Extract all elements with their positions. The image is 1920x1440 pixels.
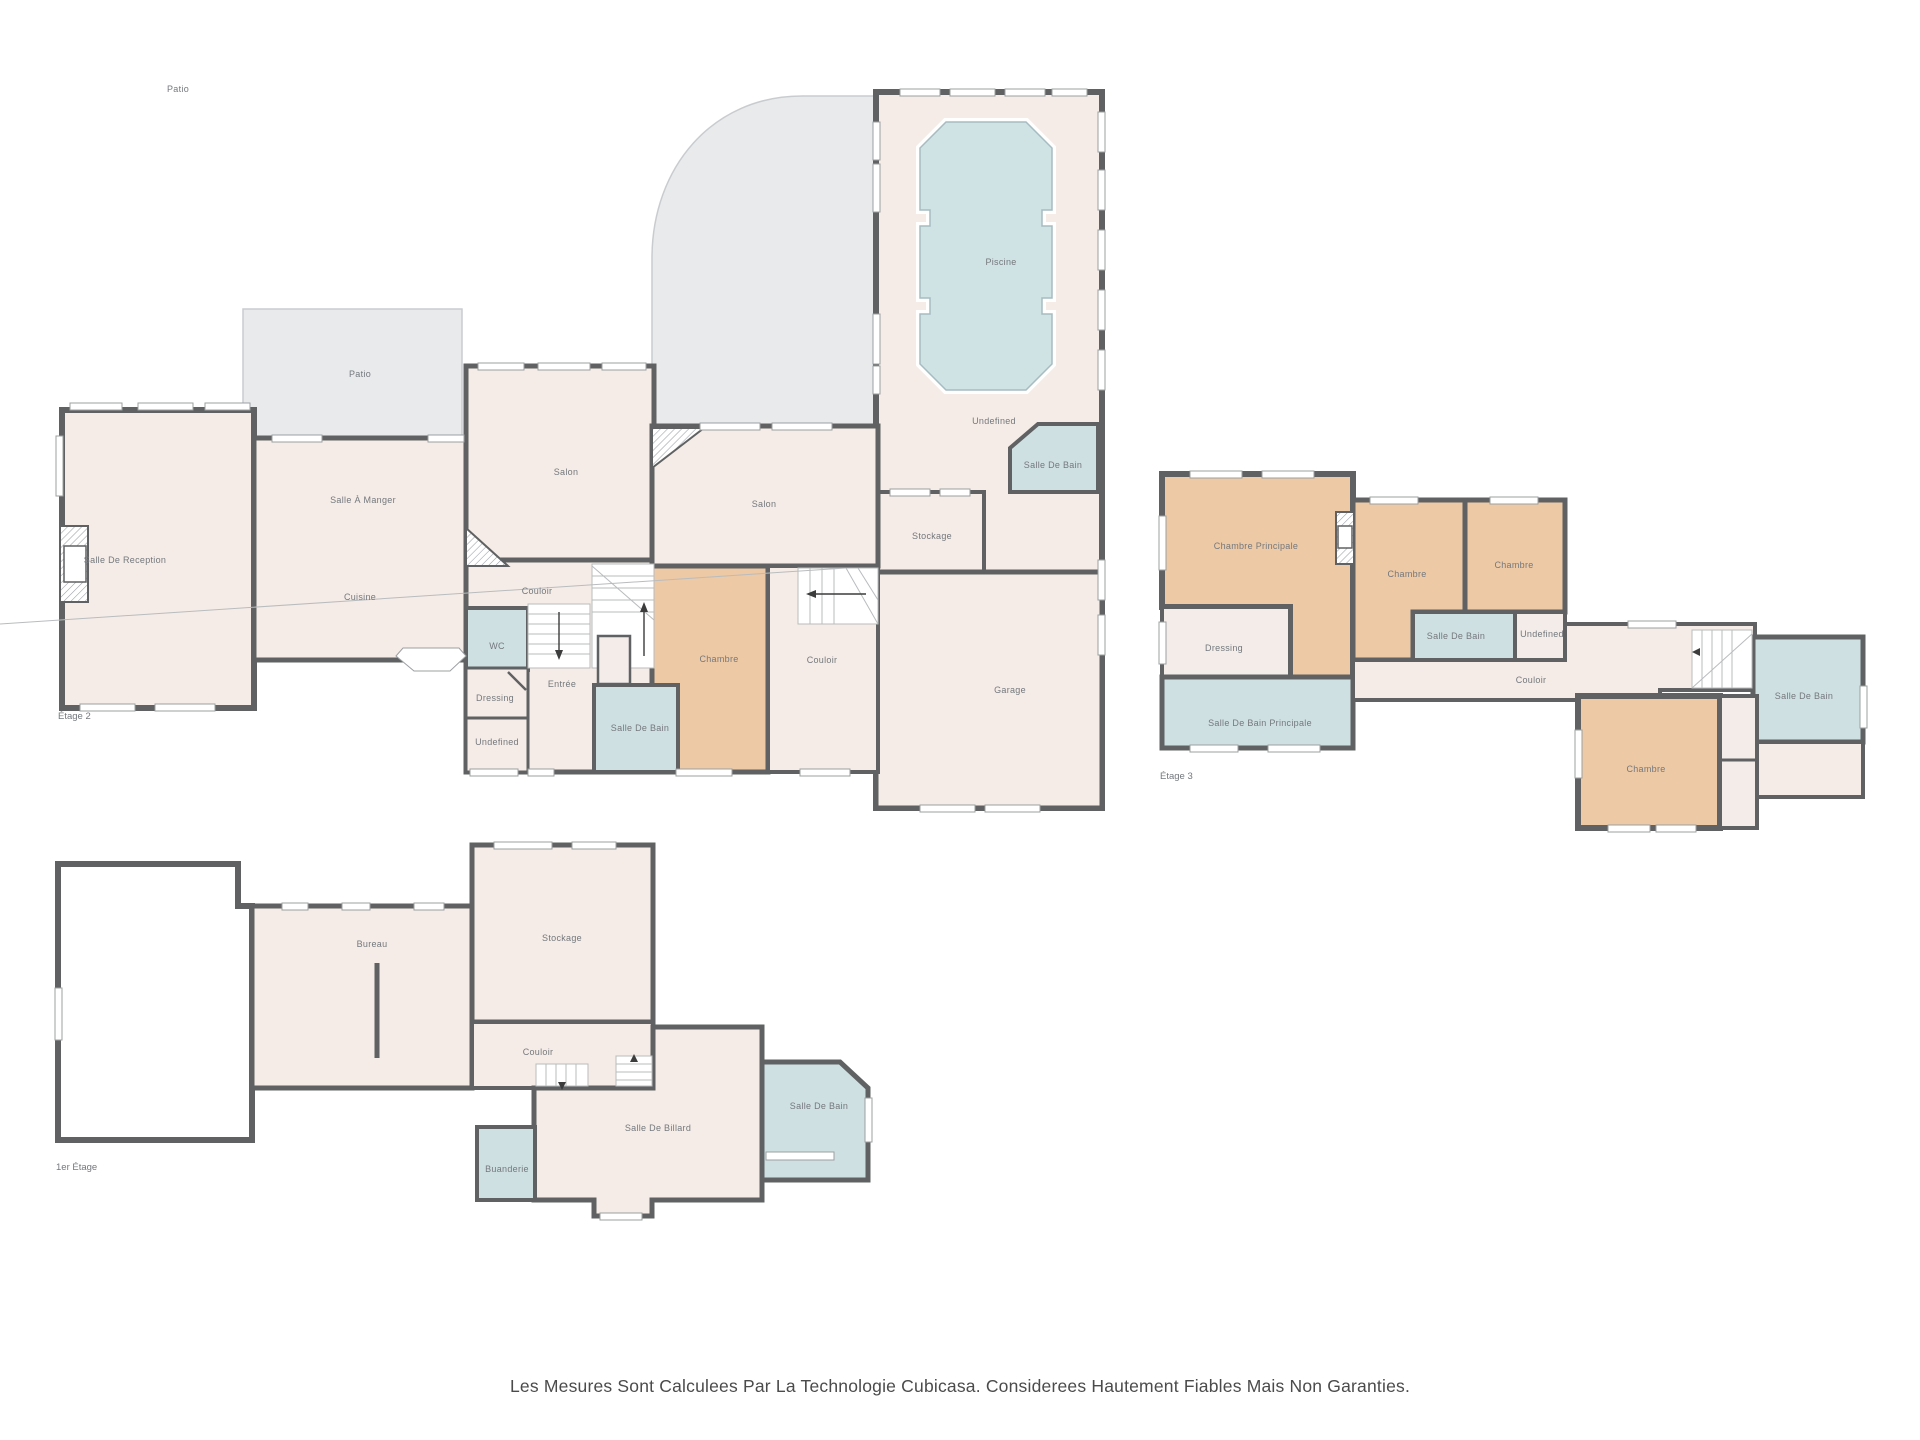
room-salle-de-bain-billard-shape xyxy=(762,1062,868,1180)
room-label-undefined1: Undefined xyxy=(475,737,519,747)
room-label-chambre-bottom: Chambre xyxy=(1626,764,1665,774)
room-label-salle-de-bain2: Salle De Bain xyxy=(1024,460,1082,470)
room-label-couloir: Couloir xyxy=(523,1047,554,1057)
room-label-entree: Entrée xyxy=(548,679,576,689)
unfilled-area-shape xyxy=(58,864,252,1140)
curved-terrace-shape xyxy=(652,96,877,426)
floorplan-page: Patio Salle De Reception Patio Salle À M… xyxy=(0,0,1920,1440)
bath-fixture xyxy=(766,1152,834,1160)
fireplace-chambre-principale-icon xyxy=(1336,512,1354,564)
room-label-salle-de-bain-principale: Salle De Bain Principale xyxy=(1208,718,1312,728)
room-chambre-bottom-shape xyxy=(1578,696,1720,828)
floor-etage-2-shapes xyxy=(0,89,1105,812)
room-label-dressing1: Dressing xyxy=(476,693,514,703)
room-label-salon1: Salon xyxy=(554,467,579,477)
floor-label-1er-etage: 1er Étage xyxy=(56,1162,97,1173)
room-label-salle-de-bain-right: Salle De Bain xyxy=(1775,691,1833,701)
room-label-salle-a-manger: Salle À Manger xyxy=(330,495,396,505)
room-wc-shape xyxy=(466,608,528,670)
room-label-couloir2: Couloir xyxy=(807,655,838,665)
room-salle-de-bain-piscine-shape xyxy=(1010,424,1098,492)
room-label-undefined-mid: Undefined xyxy=(1520,629,1564,639)
room-label-couloir3: Couloir xyxy=(1516,675,1547,685)
room-label-salle-de-bain-mid: Salle De Bain xyxy=(1427,631,1485,641)
room-label-salle-de-reception: Salle De Reception xyxy=(84,555,166,565)
room-chambre-right-shape xyxy=(1465,500,1565,612)
stairs-etage2-upper xyxy=(592,564,654,684)
stairs-etage2-main xyxy=(528,604,590,668)
room-label-piscine: Piscine xyxy=(985,257,1016,267)
room-label-chambre-mid: Chambre xyxy=(1387,569,1426,579)
room-label-dressing: Dressing xyxy=(1205,643,1243,653)
room-salle-de-bain-principale-shape xyxy=(1162,677,1353,748)
bay-window xyxy=(396,648,466,671)
room-salle-a-manger-cuisine-shape xyxy=(254,438,466,660)
room-salon1-shape xyxy=(466,366,654,566)
room-label-salle-de-billard: Salle De Billard xyxy=(625,1123,691,1133)
room-label-chambre-right: Chambre xyxy=(1494,560,1533,570)
floor-label-etage-3: Étage 3 xyxy=(1160,771,1193,782)
floorplan-drawing xyxy=(0,0,1920,1440)
room-label-couloir1: Couloir xyxy=(522,586,553,596)
room-salle-de-bain-right-shape xyxy=(1753,637,1863,742)
room-label-stockage2: Stockage xyxy=(912,531,952,541)
room-label-garage: Garage xyxy=(994,685,1026,695)
room-label-patio: Patio xyxy=(349,369,371,379)
room-label-salle-de-bain1: Salle De Bain xyxy=(611,723,669,733)
room-label-chambre-principale: Chambre Principale xyxy=(1214,541,1298,551)
room-bureau-shape xyxy=(252,906,472,1088)
room-label-cuisine: Cuisine xyxy=(344,592,376,602)
room-label-stockage: Stockage xyxy=(542,933,582,943)
room-label-undefined2: Undefined xyxy=(972,416,1016,426)
stray-patio-label: Patio xyxy=(167,84,189,94)
room-label-bureau: Bureau xyxy=(357,939,388,949)
room-wc-right-shape xyxy=(1753,742,1863,797)
room-salon2-shape xyxy=(652,426,878,566)
room-label-salle-de-bain-billard: Salle De Bain xyxy=(790,1101,848,1111)
stairs-1er-etage-left xyxy=(536,1064,588,1090)
room-label-wc: WC xyxy=(489,641,505,651)
stairs-1er-etage-right xyxy=(616,1054,652,1086)
stairs-etage3 xyxy=(1692,630,1752,688)
room-label-chambre1: Chambre xyxy=(699,654,738,664)
floor-etage-3-shapes xyxy=(1159,471,1867,832)
floor-label-etage-2: Étage 2 xyxy=(58,711,91,722)
room-piscine-shape xyxy=(920,122,1052,390)
closet-strip-shape xyxy=(1720,696,1757,828)
room-label-buanderie: Buanderie xyxy=(485,1164,529,1174)
room-label-salon2: Salon xyxy=(752,499,777,509)
room-garage-shape xyxy=(876,572,1102,808)
disclaimer-text: Les Mesures Sont Calculees Par La Techno… xyxy=(0,1376,1920,1397)
room-dressing-shape xyxy=(1162,607,1290,677)
floor-1er-etage-shapes xyxy=(55,842,872,1220)
